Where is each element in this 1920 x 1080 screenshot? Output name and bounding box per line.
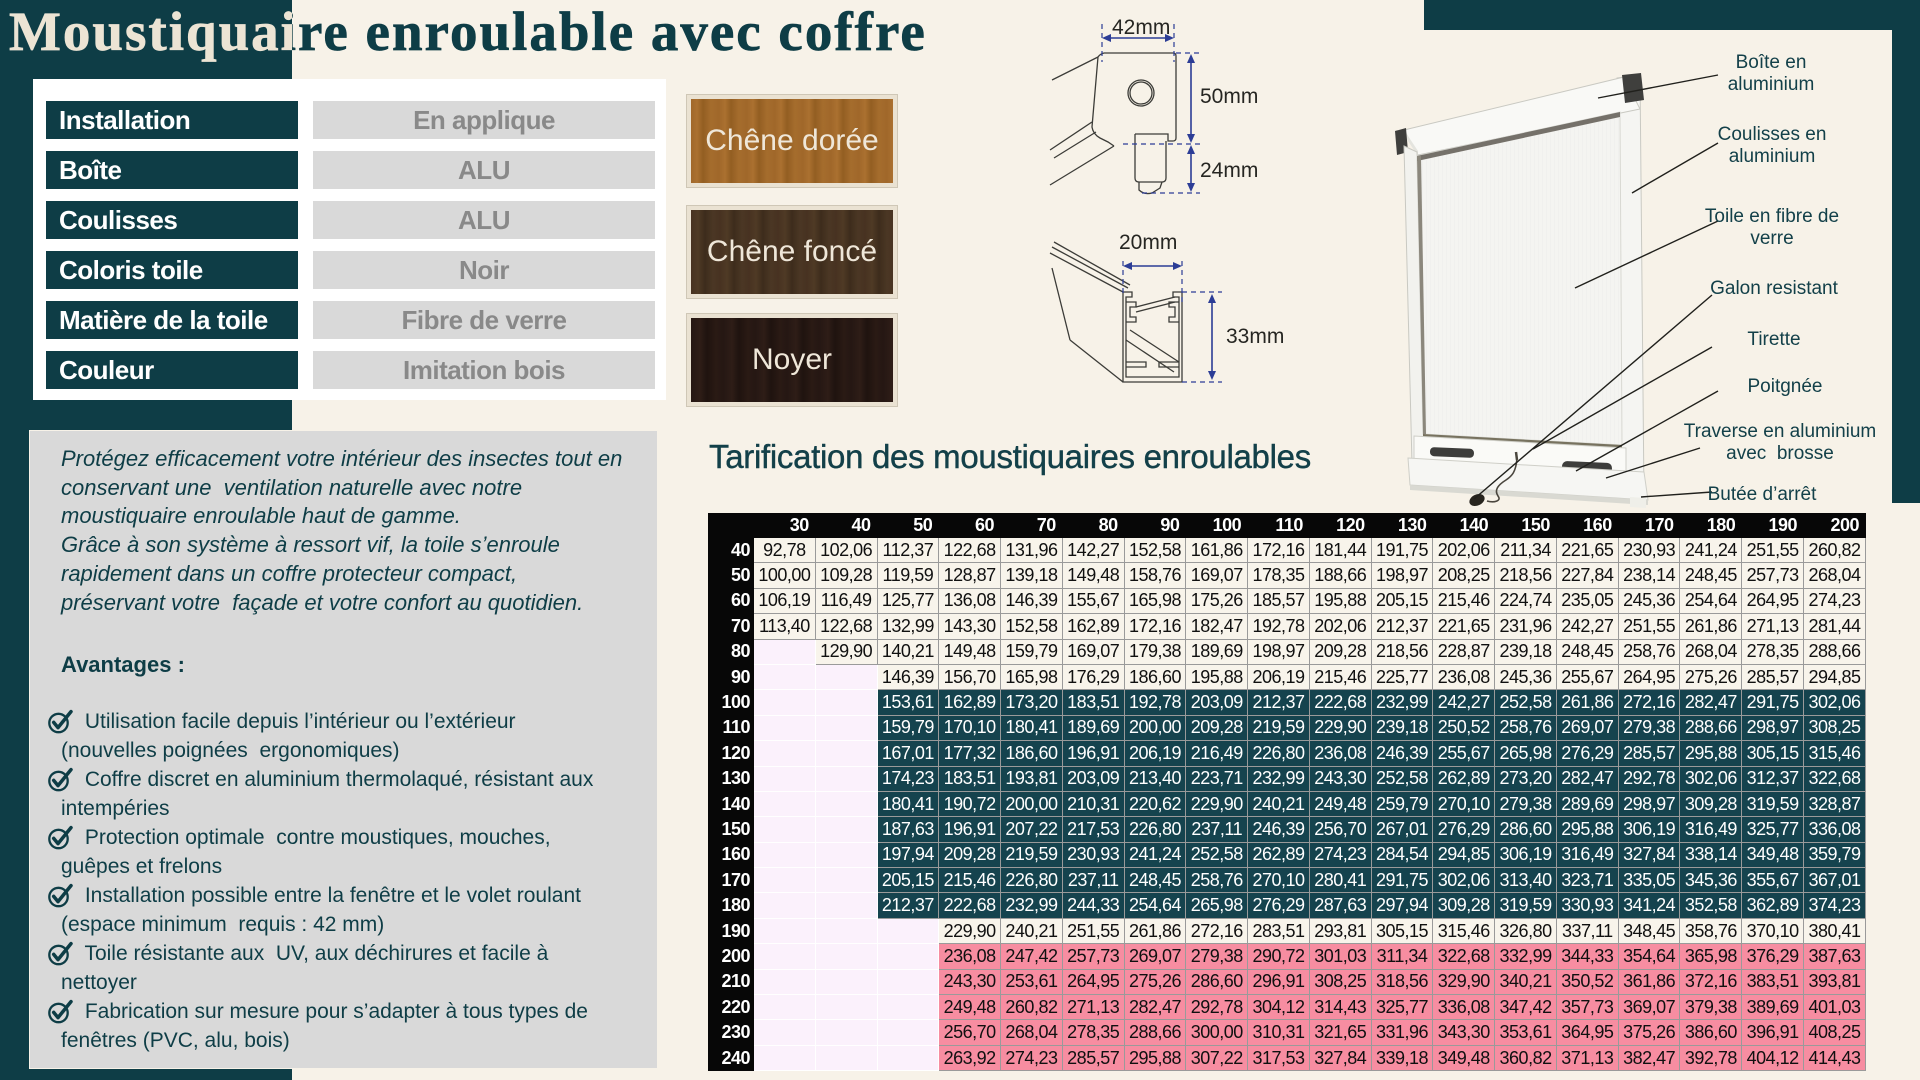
svg-text:50mm: 50mm <box>1200 85 1258 108</box>
svg-text:33mm: 33mm <box>1226 325 1284 348</box>
svg-text:42mm: 42mm <box>1112 16 1170 39</box>
svg-text:20mm: 20mm <box>1119 231 1177 254</box>
svg-text:24mm: 24mm <box>1200 159 1258 182</box>
